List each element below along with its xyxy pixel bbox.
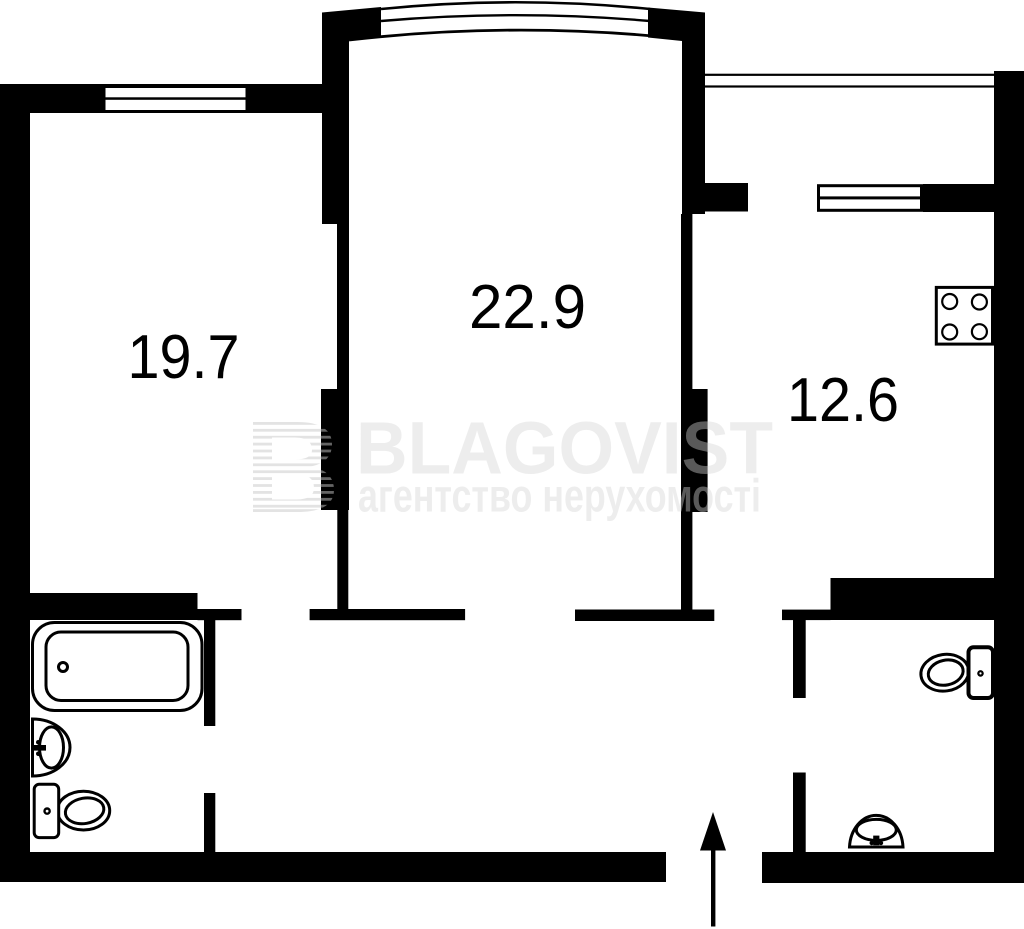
svg-text:22.9: 22.9: [469, 273, 586, 342]
svg-text:19.7: 19.7: [128, 323, 240, 392]
svg-text:агентство нерухомості: агентство нерухомості: [358, 470, 761, 522]
svg-text:12.6: 12.6: [787, 366, 899, 435]
